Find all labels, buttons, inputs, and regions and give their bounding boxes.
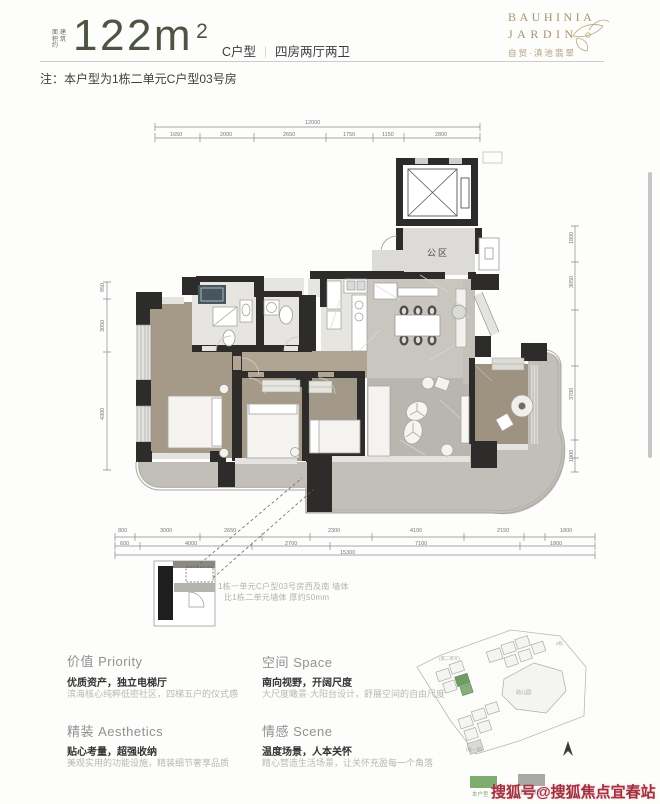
svg-text:4100: 4100 [410, 528, 422, 534]
svg-text:本户型: 本户型 [472, 790, 489, 798]
svg-text:7100: 7100 [415, 541, 427, 547]
svg-text:1150: 1150 [382, 132, 394, 138]
svg-text:幼儿园: 幼儿园 [516, 689, 531, 696]
svg-text:800: 800 [118, 528, 127, 534]
svg-text:3050: 3050 [100, 320, 106, 332]
svg-text:1750: 1750 [343, 132, 355, 138]
svg-text:3050: 3050 [569, 276, 575, 288]
svg-text:12000: 12000 [305, 120, 320, 126]
svg-text:15300: 15300 [340, 550, 355, 556]
svg-text:公区: 公区 [427, 248, 449, 258]
svg-text:950: 950 [100, 283, 106, 292]
svg-text:2150: 2150 [497, 528, 509, 534]
svg-text:3700: 3700 [569, 388, 575, 400]
svg-text:2000: 2000 [220, 132, 232, 138]
svg-text:1650: 1650 [170, 132, 182, 138]
svg-text:1000: 1000 [569, 450, 575, 462]
svg-text:1800: 1800 [550, 541, 562, 547]
svg-text:600: 600 [120, 541, 129, 547]
svg-text:(低一期): (低一期) [466, 746, 483, 753]
svg-text:2700: 2700 [285, 541, 297, 547]
svg-text:4300: 4300 [100, 408, 106, 420]
svg-text:2栋: 2栋 [556, 640, 564, 647]
svg-text:(第二单元): (第二单元) [439, 655, 460, 662]
svg-text:3000: 3000 [160, 528, 172, 534]
svg-text:2650: 2650 [283, 132, 295, 138]
svg-text:2800: 2800 [435, 132, 447, 138]
svg-text:1800: 1800 [569, 232, 575, 244]
svg-text:2300: 2300 [328, 528, 340, 534]
svg-text:4000: 4000 [185, 541, 197, 547]
svg-text:1800: 1800 [560, 528, 572, 534]
svg-text:2650: 2650 [224, 528, 236, 534]
